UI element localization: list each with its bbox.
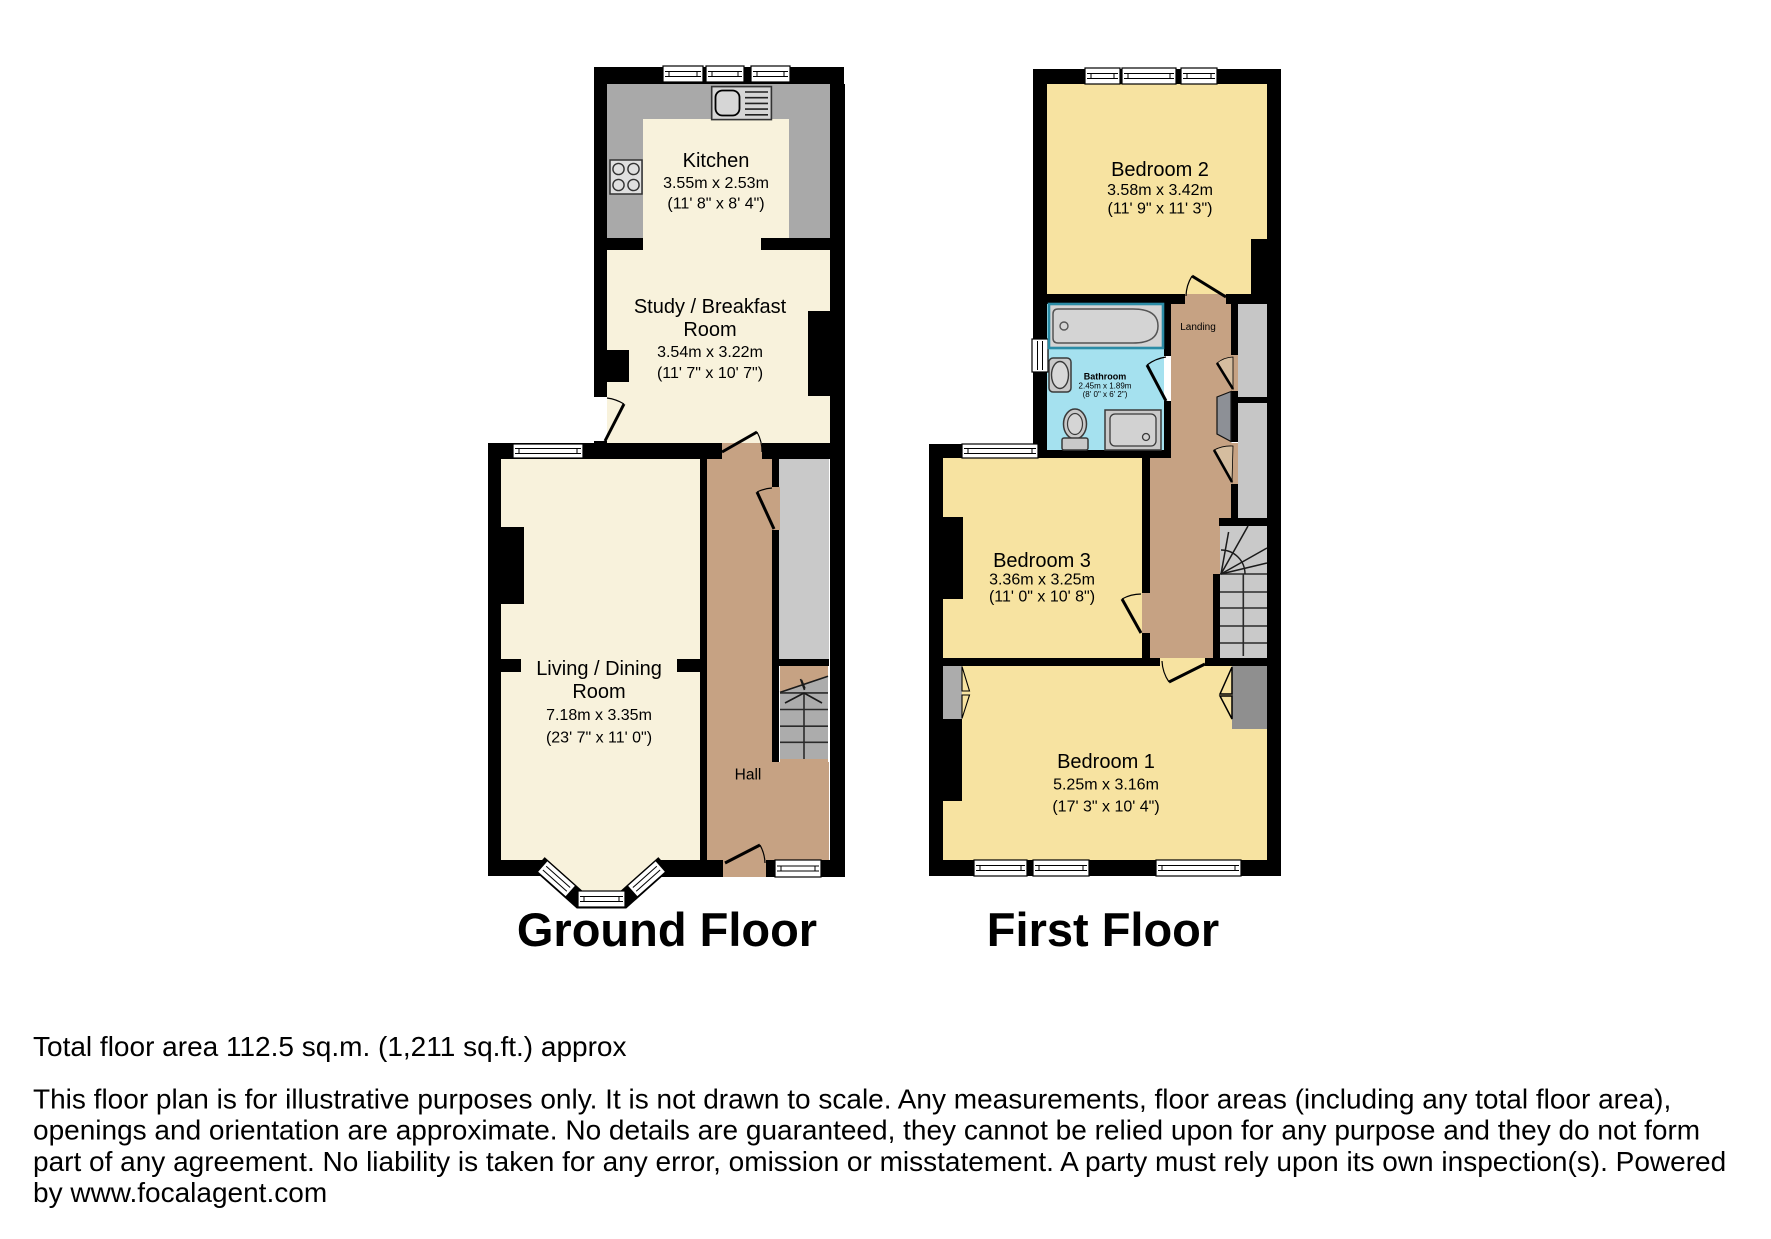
svg-text:7.18m x 3.35m: 7.18m x 3.35m (546, 707, 652, 724)
svg-text:3.55m x 2.53m: 3.55m x 2.53m (663, 175, 769, 192)
svg-text:3.58m x 3.42m: 3.58m x 3.42m (1107, 182, 1213, 199)
svg-text:(11' 7" x 10' 7"): (11' 7" x 10' 7") (657, 365, 763, 382)
svg-text:Bedroom 1: Bedroom 1 (1057, 751, 1155, 773)
svg-text:by www.focalagent.com: by www.focalagent.com (33, 1177, 327, 1208)
svg-text:(23' 7" x 11' 0"): (23' 7" x 11' 0") (546, 730, 652, 747)
svg-text:(17' 3" x 10' 4"): (17' 3" x 10' 4") (1052, 799, 1159, 816)
svg-text:Room: Room (572, 681, 625, 703)
svg-text:3.36m x 3.25m: 3.36m x 3.25m (989, 572, 1095, 589)
svg-text:This floor plan is for illustr: This floor plan is for illustrative purp… (33, 1084, 1671, 1115)
svg-text:Bedroom 3: Bedroom 3 (993, 550, 1091, 572)
svg-text:(8' 0" x 6' 2"): (8' 0" x 6' 2") (1083, 390, 1128, 399)
svg-text:Study / Breakfast: Study / Breakfast (634, 296, 787, 318)
svg-text:Hall: Hall (735, 767, 762, 784)
svg-text:(11' 0" x 10' 8"): (11' 0" x 10' 8") (989, 589, 1095, 606)
svg-text:Kitchen: Kitchen (683, 150, 750, 172)
svg-text:part of any agreement. No liab: part of any agreement. No liability is t… (33, 1146, 1726, 1177)
svg-text:Landing: Landing (1180, 322, 1216, 333)
svg-text:Total floor area 112.5 sq.m. (: Total floor area 112.5 sq.m. (1,211 sq.f… (33, 1031, 627, 1062)
svg-text:5.25m x 3.16m: 5.25m x 3.16m (1053, 777, 1159, 794)
svg-text:Living / Dining: Living / Dining (536, 658, 662, 680)
svg-text:openings and orientation are a: openings and orientation are approximate… (33, 1115, 1700, 1146)
svg-text:(11' 9" x 11' 3"): (11' 9" x 11' 3") (1108, 201, 1213, 218)
svg-text:3.54m x 3.22m: 3.54m x 3.22m (657, 344, 763, 361)
svg-text:First Floor: First Floor (987, 903, 1219, 956)
svg-text:Bedroom 2: Bedroom 2 (1111, 159, 1209, 181)
svg-text:Bathroom: Bathroom (1084, 372, 1127, 382)
svg-text:(11' 8" x 8' 4"): (11' 8" x 8' 4") (667, 196, 764, 213)
svg-text:Room: Room (683, 319, 736, 341)
svg-text:Ground Floor: Ground Floor (517, 903, 817, 956)
